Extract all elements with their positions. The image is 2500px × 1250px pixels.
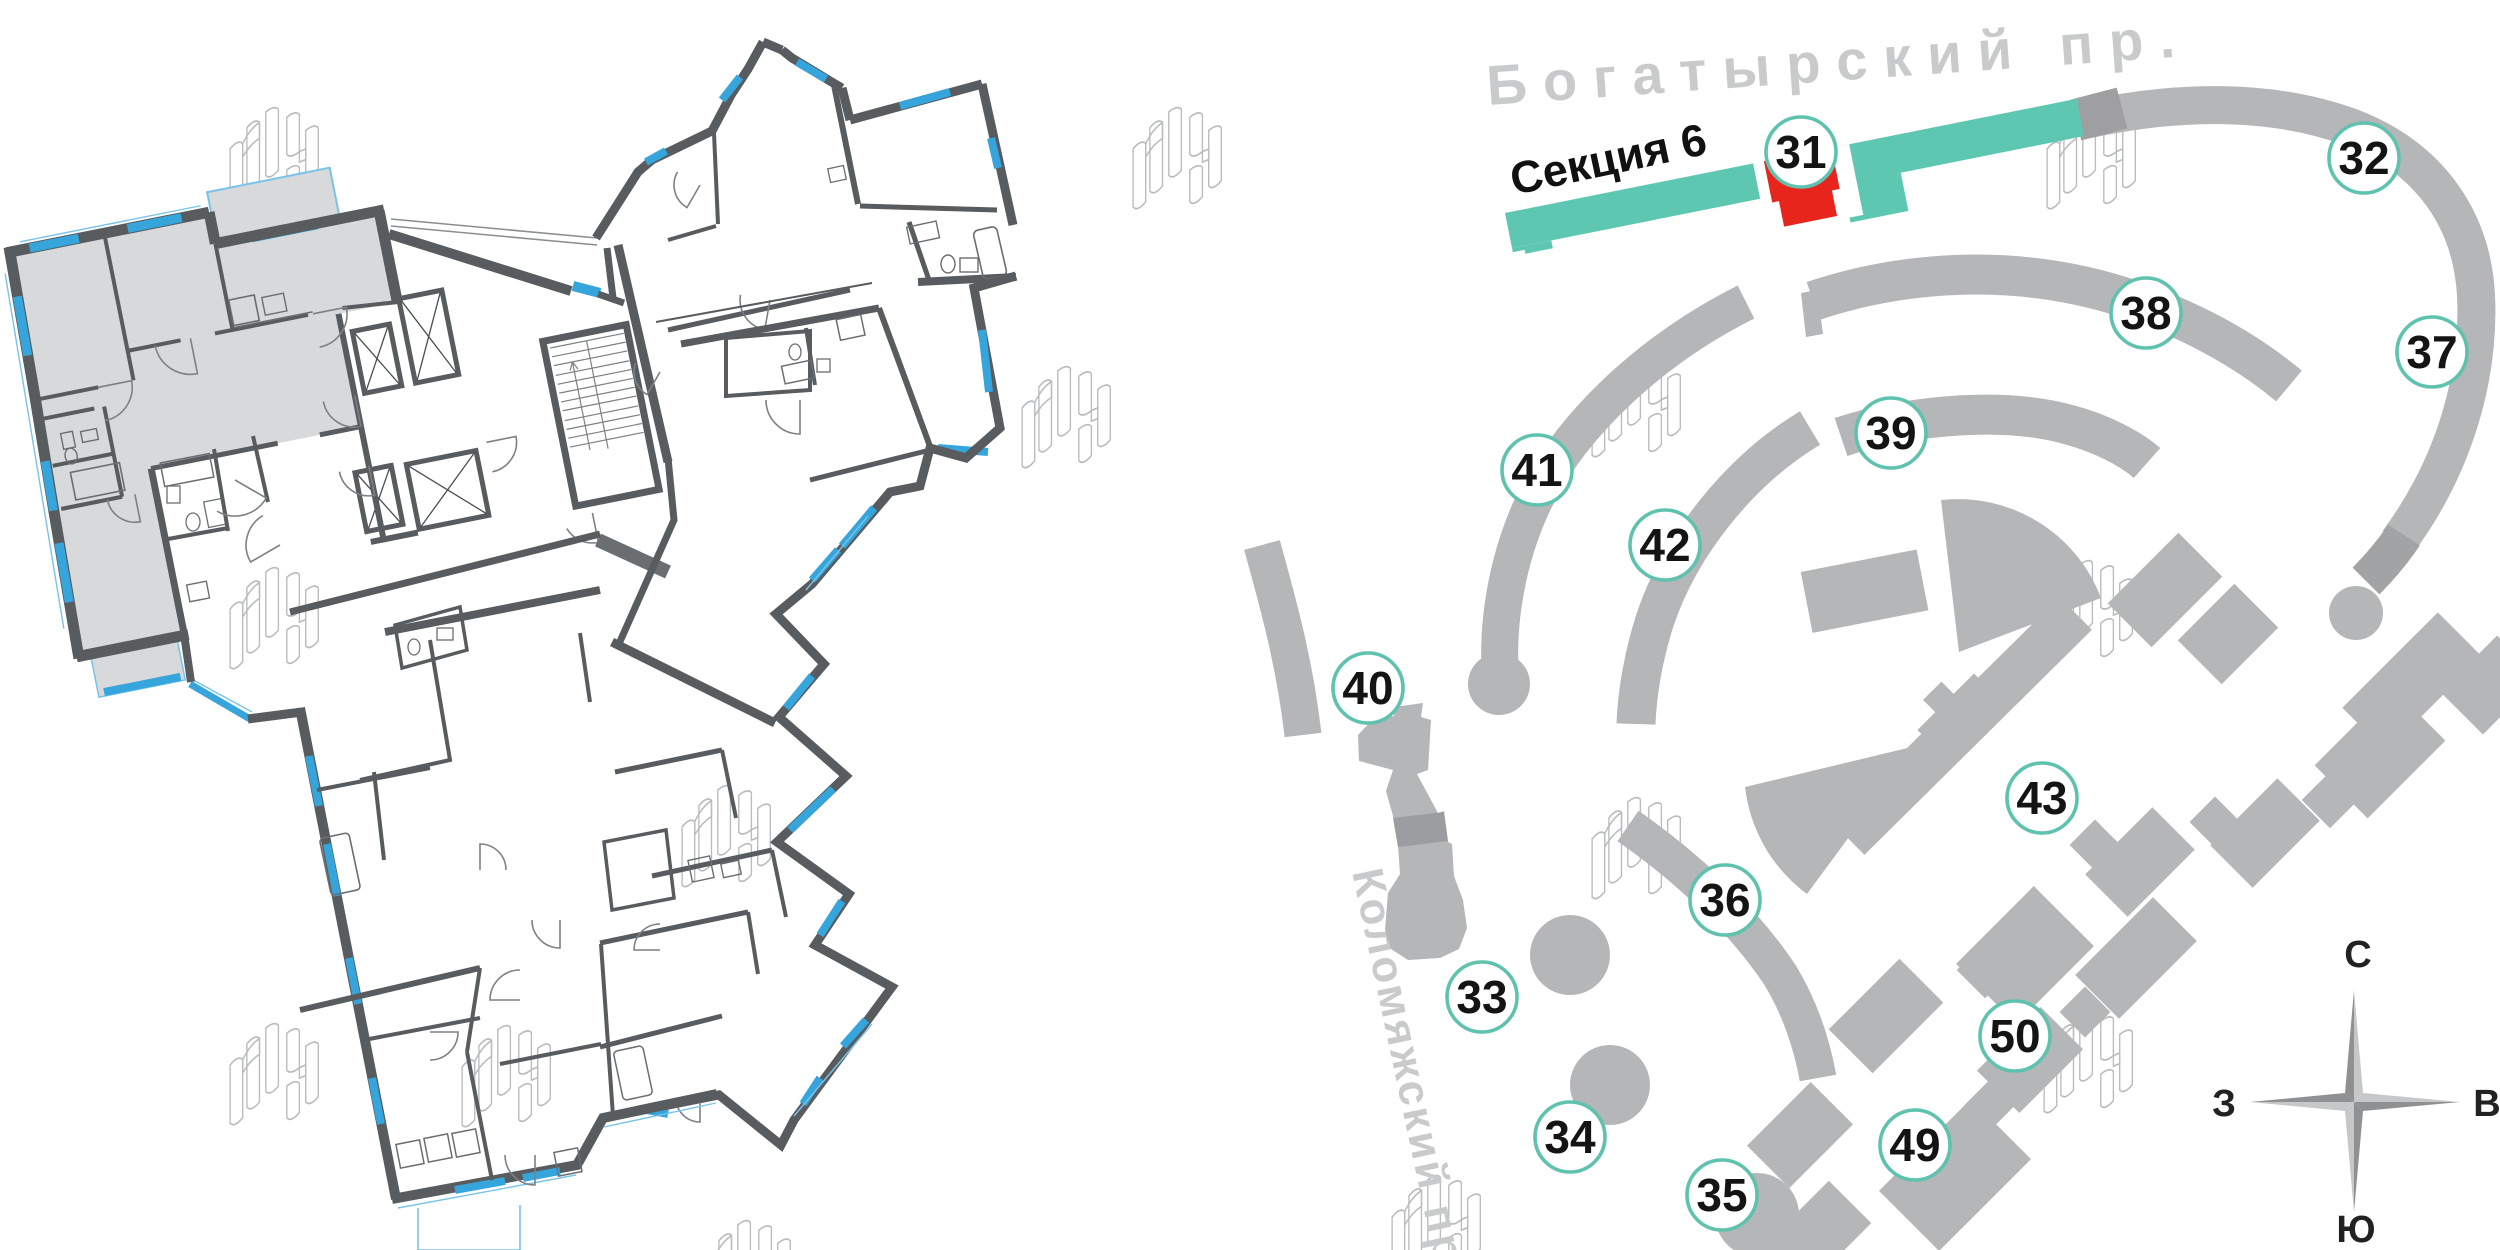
svg-text:34: 34 — [1544, 1111, 1596, 1163]
svg-text:42: 42 — [1639, 519, 1690, 571]
svg-text:З: З — [2212, 1083, 2236, 1125]
svg-text:41: 41 — [1511, 444, 1562, 496]
svg-text:В: В — [2473, 1083, 2500, 1125]
svg-text:32: 32 — [2338, 132, 2389, 184]
svg-text:40: 40 — [1342, 662, 1393, 714]
svg-text:С: С — [2344, 934, 2371, 976]
svg-text:43: 43 — [2016, 772, 2067, 824]
svg-text:50: 50 — [1989, 1010, 2040, 1062]
svg-text:39: 39 — [1865, 407, 1916, 459]
svg-text:Ю: Ю — [2336, 1209, 2375, 1250]
svg-text:31: 31 — [1775, 126, 1826, 178]
svg-text:35: 35 — [1696, 1169, 1747, 1221]
svg-text:49: 49 — [1889, 1119, 1940, 1171]
svg-text:38: 38 — [2120, 287, 2171, 339]
svg-text:37: 37 — [2406, 326, 2457, 378]
svg-text:33: 33 — [1456, 971, 1507, 1023]
svg-text:36: 36 — [1699, 874, 1750, 926]
